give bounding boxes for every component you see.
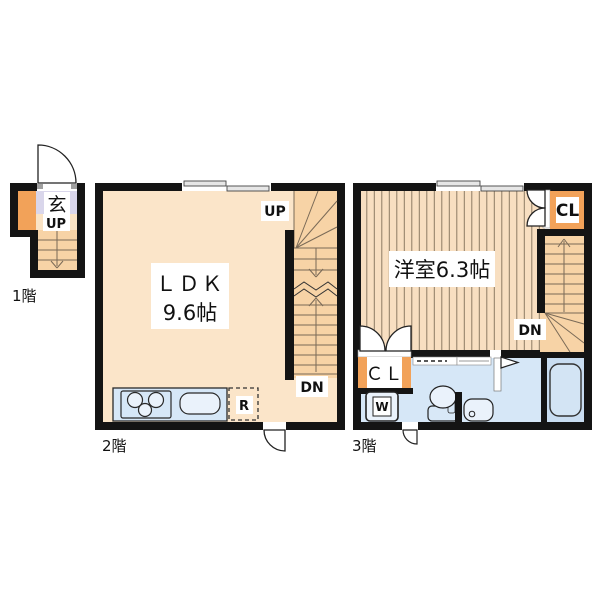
toilet (428, 386, 458, 421)
up-label-2f: UP (264, 204, 286, 220)
door-opening-2f (263, 422, 286, 430)
up-label-1f: UP (46, 217, 66, 232)
door-swing-2f (264, 430, 285, 451)
ldk-area-label: 9.6帖 (163, 301, 217, 325)
kitchen-counter (113, 388, 227, 421)
washer-label: W (375, 400, 388, 414)
entrance-label: 玄 (47, 194, 66, 216)
window-2f (182, 181, 271, 191)
door-opening-3f (402, 422, 418, 430)
floor1-plan: 玄 UP 1階 (10, 145, 85, 305)
closet-upper-label: CL (556, 201, 579, 221)
ldk-label: ＬＤＫ (156, 272, 225, 296)
bath-wall (541, 358, 547, 422)
floor3-plan: CL ＣＬ W (352, 181, 592, 455)
floor2-name: 2階 (102, 437, 127, 455)
western-room-label: 洋室6.3帖 (394, 258, 490, 282)
bathtub (550, 364, 581, 416)
washbasin (464, 399, 493, 421)
shoe-cabinet (18, 191, 36, 230)
washing-machine: W (366, 392, 398, 421)
partition-wall (455, 392, 462, 422)
floor1-name: 1階 (12, 287, 37, 305)
dn-label-3f: DN (518, 323, 541, 339)
door-jamb (37, 184, 43, 189)
sliding-door (413, 357, 491, 365)
refrigerator-label: R (239, 399, 249, 414)
washroom-door-opening (490, 350, 501, 358)
door-jamb (71, 184, 77, 189)
entrance-door-swing (38, 145, 76, 183)
window-3f (436, 181, 524, 191)
stairs-1f (38, 230, 77, 270)
floor-plan: 玄 UP 1階 (0, 0, 600, 600)
door-swing-3f (403, 430, 417, 444)
closet-lower-label: ＣＬ (366, 364, 404, 385)
floor-plan-canvas: 玄 UP 1階 (0, 0, 600, 600)
dn-label-2f: DN (300, 380, 323, 396)
floor2-plan: R UP DN ＬＤＫ 9.6帖 2階 (95, 181, 345, 455)
kitchen-sink (180, 393, 220, 414)
floor3-name: 3階 (352, 437, 377, 455)
